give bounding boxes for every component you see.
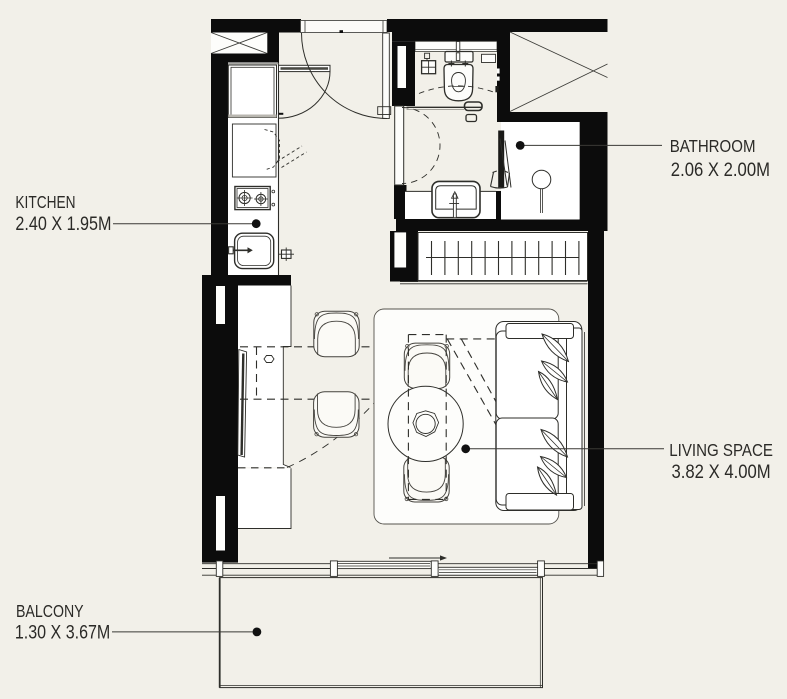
svg-text:KITCHEN: KITCHEN [15,192,75,212]
svg-text:2.06 X 2.00M: 2.06 X 2.00M [671,160,770,181]
svg-text:BALCONY: BALCONY [16,601,84,621]
svg-text:2.40 X 1.95M: 2.40 X 1.95M [15,214,111,235]
svg-text:3.82 X 4.00M: 3.82 X 4.00M [672,462,771,483]
svg-text:BATHROOM: BATHROOM [670,136,756,156]
svg-text:LIVING SPACE: LIVING SPACE [669,440,773,460]
svg-text:1.30 X 3.67M: 1.30 X 3.67M [15,622,110,643]
